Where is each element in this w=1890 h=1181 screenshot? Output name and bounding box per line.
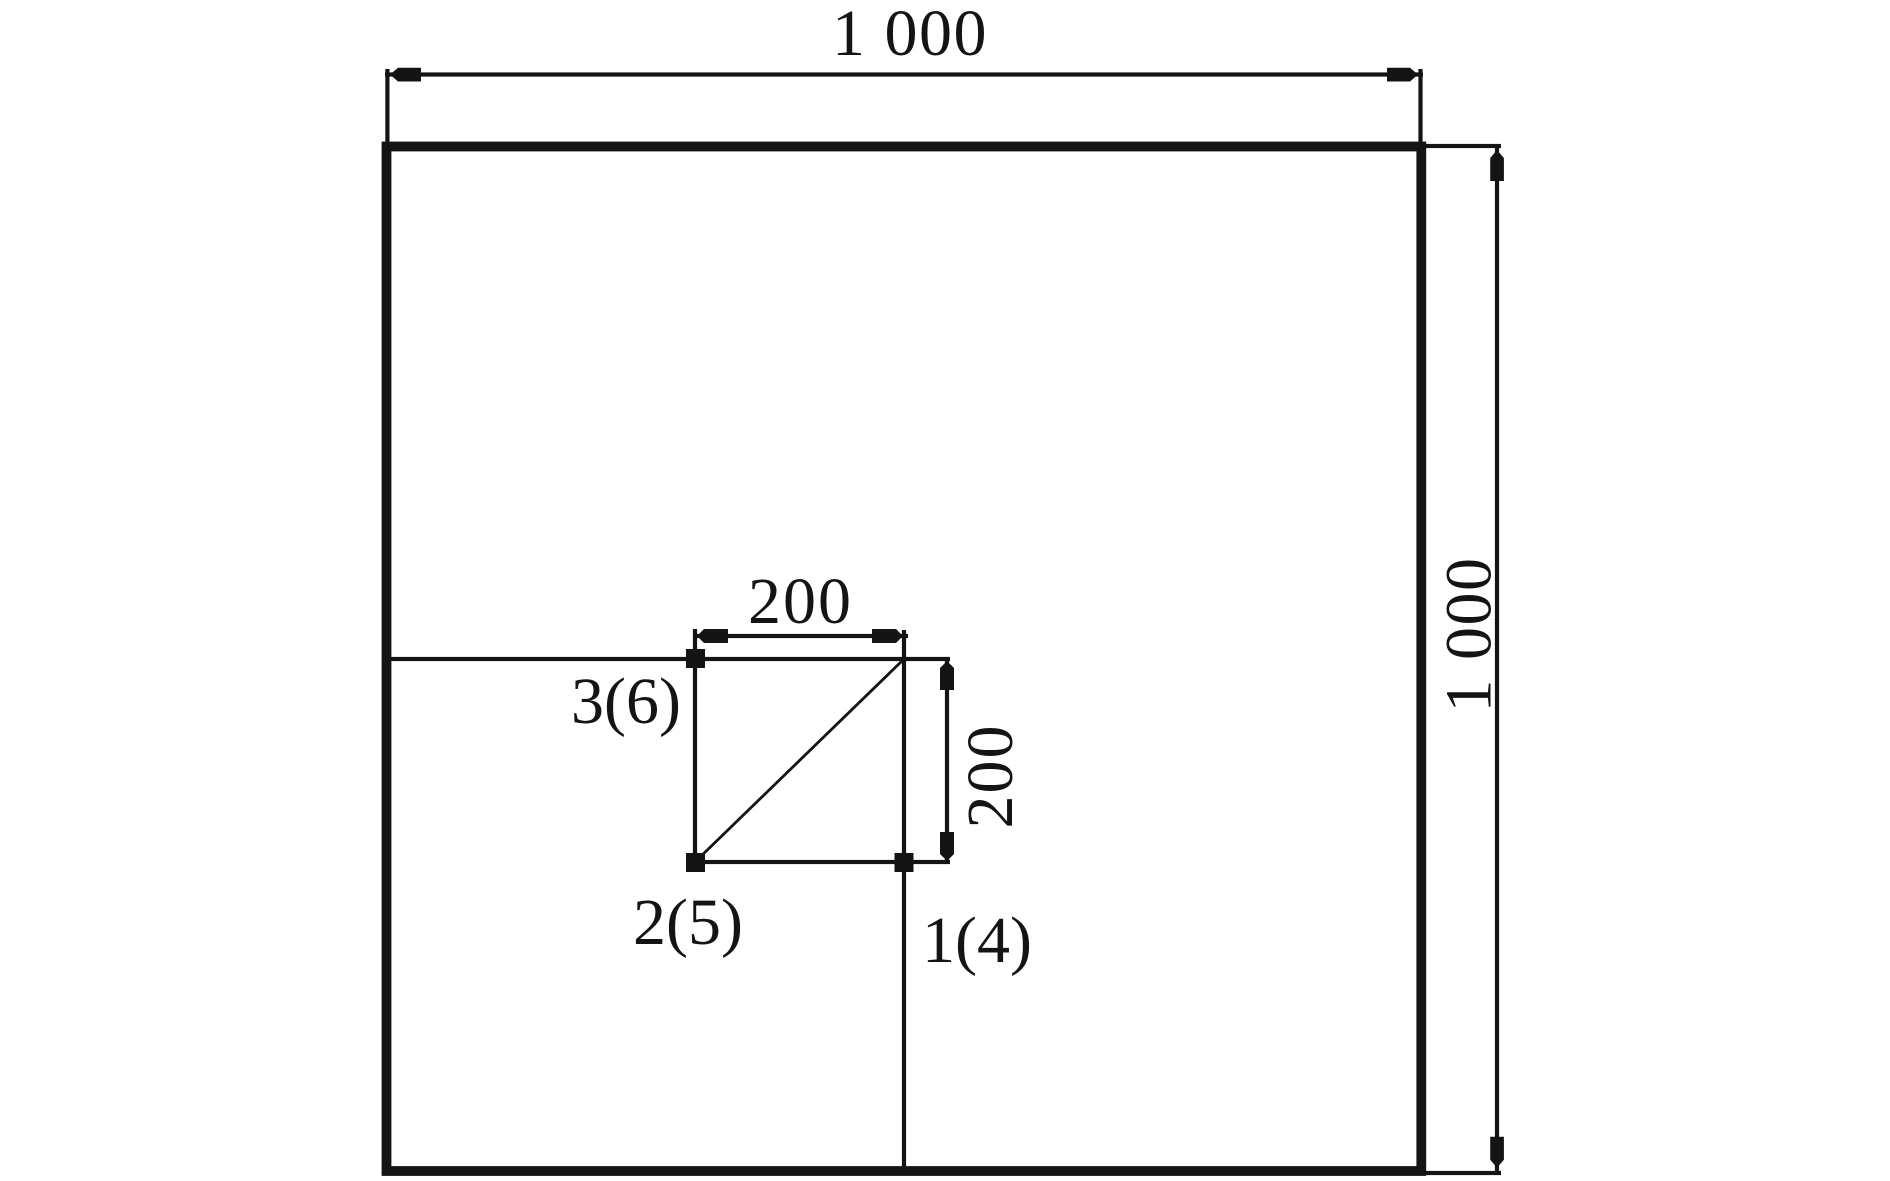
svg-text:3(6): 3(6) xyxy=(571,665,681,738)
svg-text:1(4): 1(4) xyxy=(922,904,1032,977)
svg-text:200: 200 xyxy=(954,724,1027,829)
svg-text:1 000: 1 000 xyxy=(1433,557,1506,713)
svg-text:200: 200 xyxy=(748,565,853,638)
svg-text:1 000: 1 000 xyxy=(832,0,988,70)
svg-text:2(5): 2(5) xyxy=(633,886,743,959)
